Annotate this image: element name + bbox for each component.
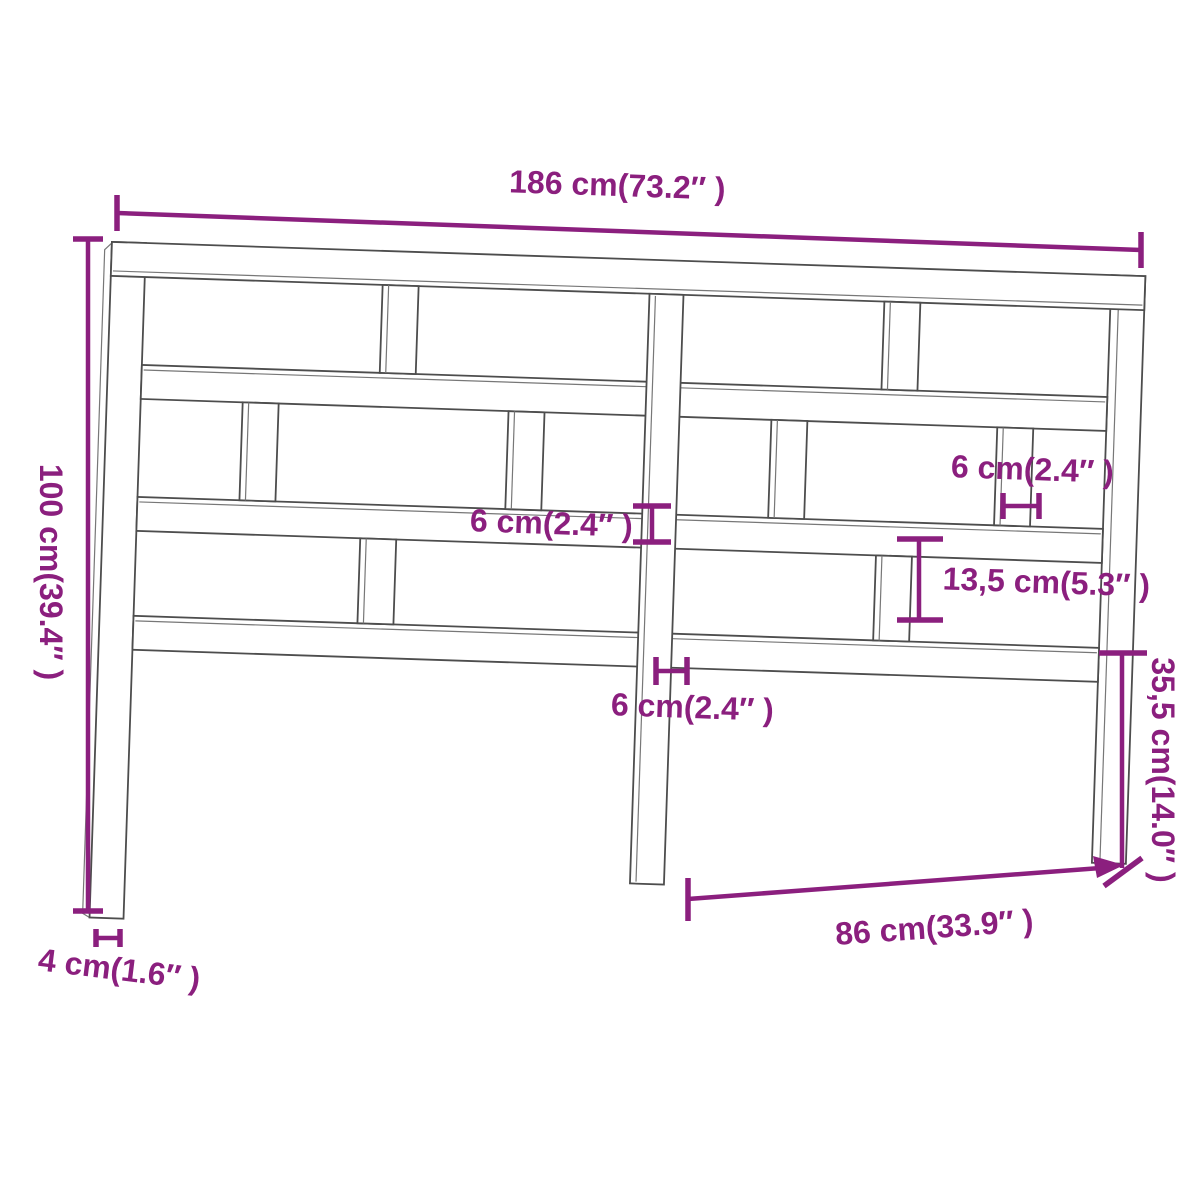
slat-row2-3: [768, 420, 807, 519]
dim-label-center-post-width: 6 cm(2.4″ ): [610, 686, 774, 728]
left-leg: [83, 242, 146, 919]
diagram-canvas: 186 cm(73.2″ ) 100 cm(39.4″ ) 4 cm(1.6″ …: [0, 0, 1200, 1200]
dim-label-slat-gap-height: 13,5 cm(5.3″ ): [942, 560, 1151, 603]
bottom-rail: [132, 616, 1099, 682]
top-rail: [111, 242, 1146, 310]
dim-label-slat-width: 6 cm(2.4″ ): [950, 448, 1114, 490]
dim-label-total-width: 186 cm(73.2″ ): [509, 163, 726, 207]
slat-row2-2: [505, 411, 544, 510]
dimension-slat-width: 6 cm(2.4″ ): [950, 448, 1114, 519]
slat-row1-right: [881, 302, 920, 391]
dim-label-leg-bottom-height: 35,5 cm(14.0″ ): [1145, 657, 1181, 882]
headboard-dimension-diagram: 186 cm(73.2″ ) 100 cm(39.4″ ) 4 cm(1.6″ …: [0, 0, 1200, 1200]
dim-label-rail-thickness: 6 cm(2.4″ ): [469, 502, 633, 544]
dim-label-total-height: 100 cm(39.4″ ): [33, 464, 69, 680]
slat-row3-left: [357, 538, 396, 624]
slat-row1-left: [380, 285, 419, 374]
rail-2: [141, 365, 1108, 431]
dimension-leg-depth: 4 cm(1.6″ ): [36, 929, 202, 997]
dimension-half-width: 86 cm(33.9″ ): [688, 856, 1124, 952]
dim-label-half-width: 86 cm(33.9″ ): [834, 902, 1035, 952]
slat-row3-right: [873, 555, 912, 641]
slat-row2-1: [239, 402, 278, 501]
dim-label-leg-depth: 4 cm(1.6″ ): [36, 941, 202, 997]
